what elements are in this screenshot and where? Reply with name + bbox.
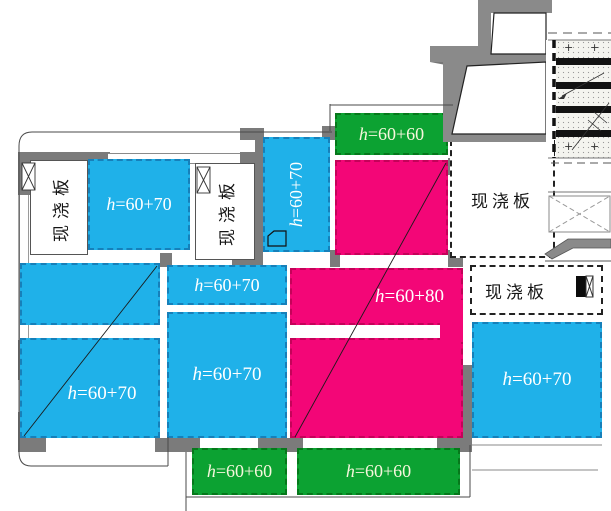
slab-cyan-left-upper (20, 263, 160, 325)
wall-band (430, 46, 546, 62)
slab-label: h=60+70 (193, 364, 262, 386)
wall-segment (18, 163, 30, 195)
stair-tread-bar (556, 130, 611, 137)
slab-magenta-upper (335, 160, 448, 255)
stair-tread-bar (556, 106, 611, 113)
plus-mark: + (590, 142, 599, 152)
wall-wedge (430, 62, 546, 84)
slab-label: h=60+80 (375, 286, 444, 308)
opening-x-box (549, 196, 610, 232)
stair-tread-bar (556, 58, 611, 65)
cast-slab-panel-right-upper: 现浇板 (450, 140, 555, 258)
slab-cyan-bottom-right: h=60+70 (472, 322, 602, 438)
section-marker (576, 276, 587, 297)
cast-slab-text: 现浇板 (471, 187, 534, 212)
slab-cyan-mid-small: h=60+70 (167, 265, 287, 305)
slab-cyan-top-left: h=60+70 (88, 159, 190, 250)
plus-mark: + (564, 43, 573, 53)
slab-label: h=60+70 (503, 369, 572, 391)
slab-label: h=60+70 (286, 162, 307, 227)
slab-label: h=60+60 (346, 461, 411, 482)
rounded-corner-bottom-left (19, 452, 31, 466)
wall-segment (255, 132, 263, 268)
slab-magenta-strip (440, 300, 463, 342)
cast-slab-text: 现浇板 (47, 173, 72, 242)
slab-magenta-middle: h=60+80 (290, 268, 463, 325)
slab-green-bottom-right: h=60+60 (297, 448, 460, 495)
wall-segment (18, 438, 46, 452)
stair-hatch-area: + + + + (556, 40, 611, 158)
slab-cyan-mid-large: h=60+70 (167, 312, 287, 438)
slab-green-bottom-left: h=60+60 (192, 448, 287, 495)
slab-green-top: h=60+60 (335, 113, 448, 155)
stair-landing-lower (452, 62, 546, 134)
cast-slab-text: 现浇板 (213, 177, 238, 246)
cast-slab-panel-center: 现浇板 (195, 163, 255, 260)
slab-label: h=60+70 (106, 194, 171, 215)
slab-magenta-lower (290, 338, 463, 438)
cast-slab-text: 现浇板 (485, 278, 548, 303)
cast-slab-panel-left: 现浇板 (30, 160, 88, 255)
stair-tread-bar (556, 82, 611, 89)
slab-label: h=60+70 (68, 383, 137, 405)
wall-segment (240, 128, 264, 140)
floor-plan-canvas: + + + + h=60+70 h=60+70 h=60+70 h=60+70 … (0, 0, 611, 511)
slab-cyan-left-lower: h=60+70 (20, 338, 160, 438)
rounded-corner-top-left (19, 132, 32, 146)
slab-label: h=60+60 (207, 461, 272, 482)
plus-mark: + (590, 43, 599, 53)
slab-cyan-vertical: h=60+70 (263, 137, 330, 252)
slab-label: h=60+70 (194, 275, 259, 296)
wall-band (478, 0, 491, 58)
plus-mark: + (564, 142, 573, 152)
stair-landing-upper (491, 13, 546, 54)
slab-label: h=60+60 (359, 124, 424, 145)
wall-band (478, 0, 552, 13)
